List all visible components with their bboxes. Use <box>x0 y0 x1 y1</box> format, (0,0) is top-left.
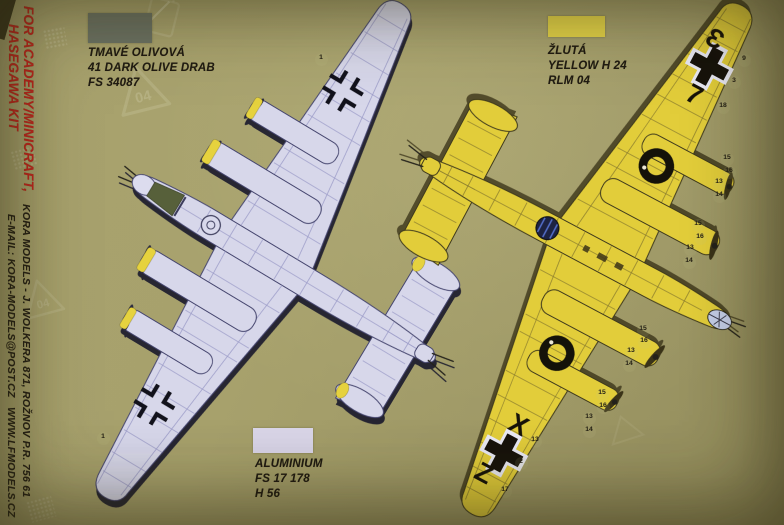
instruction-sheet-photo: 04 04 FOR ACADEMY/MINICRAFT, HASEGAWA KI… <box>0 0 784 525</box>
paint-name: ŽLUTÁ <box>548 44 627 59</box>
callout-number: 14 <box>583 425 596 438</box>
paint-name: ALUMINIUM <box>255 457 323 472</box>
paint-h-code: H 56 <box>255 487 323 502</box>
callout-number: 3 <box>728 76 741 89</box>
callout-number: 15 <box>721 153 734 166</box>
callout-number: 14 <box>713 190 726 203</box>
callout-number: 15 <box>596 388 609 401</box>
callout-number: 15 <box>637 324 650 337</box>
callout-number: 1 <box>97 432 110 445</box>
callout-number: 13 <box>583 412 596 425</box>
label-aluminium: ALUMINIUM FS 17 178 H 56 <box>255 457 323 502</box>
swatch-aluminium <box>253 428 313 453</box>
callout-number: 15 <box>692 219 705 232</box>
callout-number: 16 <box>597 401 610 414</box>
callout-number: 13 <box>684 243 697 256</box>
paint-ref: 41 DARK OLIVE DRAB <box>88 61 215 76</box>
paint-fs-code: FS 17 178 <box>255 472 323 487</box>
callout-number: 2 <box>515 457 528 470</box>
callout-number: 16 <box>723 166 736 179</box>
side-text-address: KORA MODELS - J. WOLKERA 871, ROŽNOV P.R… <box>20 204 32 497</box>
side-text-kit-compatibility-2: HASEGAWA KIT <box>6 24 21 131</box>
callout-number: 17 <box>499 485 512 498</box>
callout-number: 18 <box>717 101 730 114</box>
callout-number: 16 <box>694 232 707 245</box>
swatch-yellow <box>548 16 605 37</box>
callout-number: 9 <box>738 54 751 67</box>
label-yellow: ŽLUTÁ YELLOW H 24 RLM 04 <box>548 44 627 89</box>
label-dark-olive-drab: TMAVÉ OLIVOVÁ 41 DARK OLIVE DRAB FS 3408… <box>88 46 215 91</box>
swatch-dark-olive-drab <box>88 13 152 43</box>
paint-rlm-code: RLM 04 <box>548 74 627 89</box>
callout-number: 13 <box>529 435 542 448</box>
side-text-kit-compatibility-1: FOR ACADEMY/MINICRAFT, <box>21 6 36 192</box>
callout-number: 13 <box>625 346 638 359</box>
callout-number: 1 <box>315 53 328 66</box>
callout-number: 14 <box>683 256 696 269</box>
callout-number: 16 <box>638 336 651 349</box>
callout-number: 14 <box>623 359 636 372</box>
callout-number: 13 <box>713 177 726 190</box>
paint-name: TMAVÉ OLIVOVÁ <box>88 46 215 61</box>
side-text-contact: E-MAIL: KORA-MODELS@POST.CZ WWW.LFMODELS… <box>5 214 17 517</box>
paint-ref: YELLOW H 24 <box>548 59 627 74</box>
paint-fs-code: FS 34087 <box>88 76 215 91</box>
